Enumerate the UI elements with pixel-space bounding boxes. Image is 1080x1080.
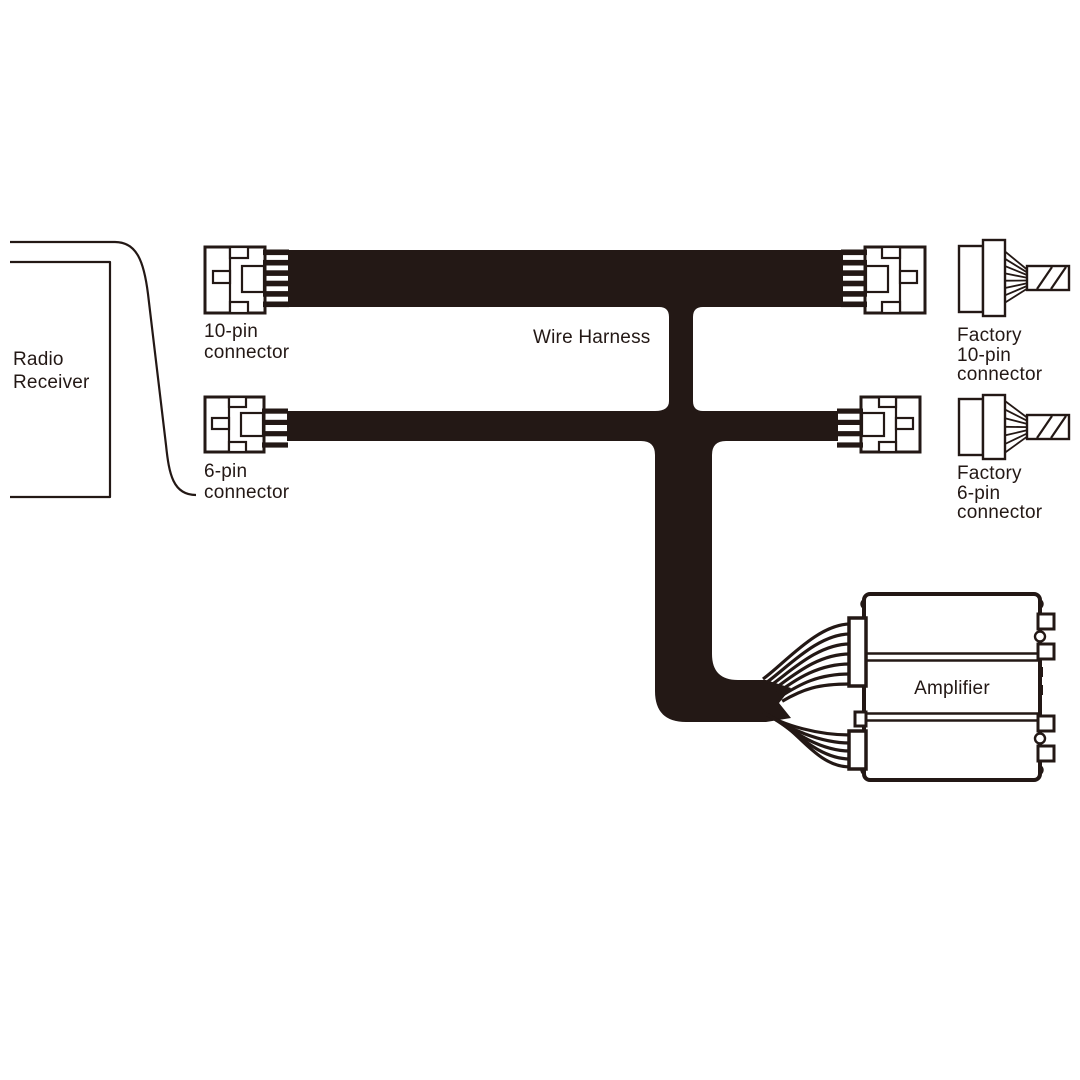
radio-receiver-label: Radio Receiver <box>13 348 90 394</box>
wire-harness-label: Wire Harness <box>533 327 650 348</box>
factory-10pin-wires <box>1005 252 1027 303</box>
factory-6pin-label: Factory 6-pin connector <box>957 464 1042 523</box>
harness-6pin-connector-right <box>837 397 920 452</box>
harness-10pin-connector <box>205 247 289 313</box>
wiring-diagram-page: Radio Receiver 10-pin connector 6-pin co… <box>0 0 1080 1080</box>
factory-10pin-cable <box>1027 266 1069 290</box>
factory-10pin-connector <box>959 240 1069 316</box>
harness-6pin-connector <box>205 397 288 452</box>
factory-6pin-connector <box>959 395 1069 459</box>
factory-6pin-wires <box>1005 401 1027 453</box>
harness-10pin-connector-right <box>841 247 925 313</box>
wiring-diagram <box>0 0 1080 1080</box>
amplifier-label: Amplifier <box>864 678 1040 699</box>
connector-6pin-label: 6-pin connector <box>204 461 289 503</box>
connector-10pin-label: 10-pin connector <box>204 321 289 363</box>
factory-10pin-label: Factory 10-pin connector <box>957 326 1042 385</box>
amplifier-wires-lower <box>763 712 850 767</box>
wire-harness-body <box>287 250 843 722</box>
factory-6pin-cable <box>1027 415 1069 439</box>
